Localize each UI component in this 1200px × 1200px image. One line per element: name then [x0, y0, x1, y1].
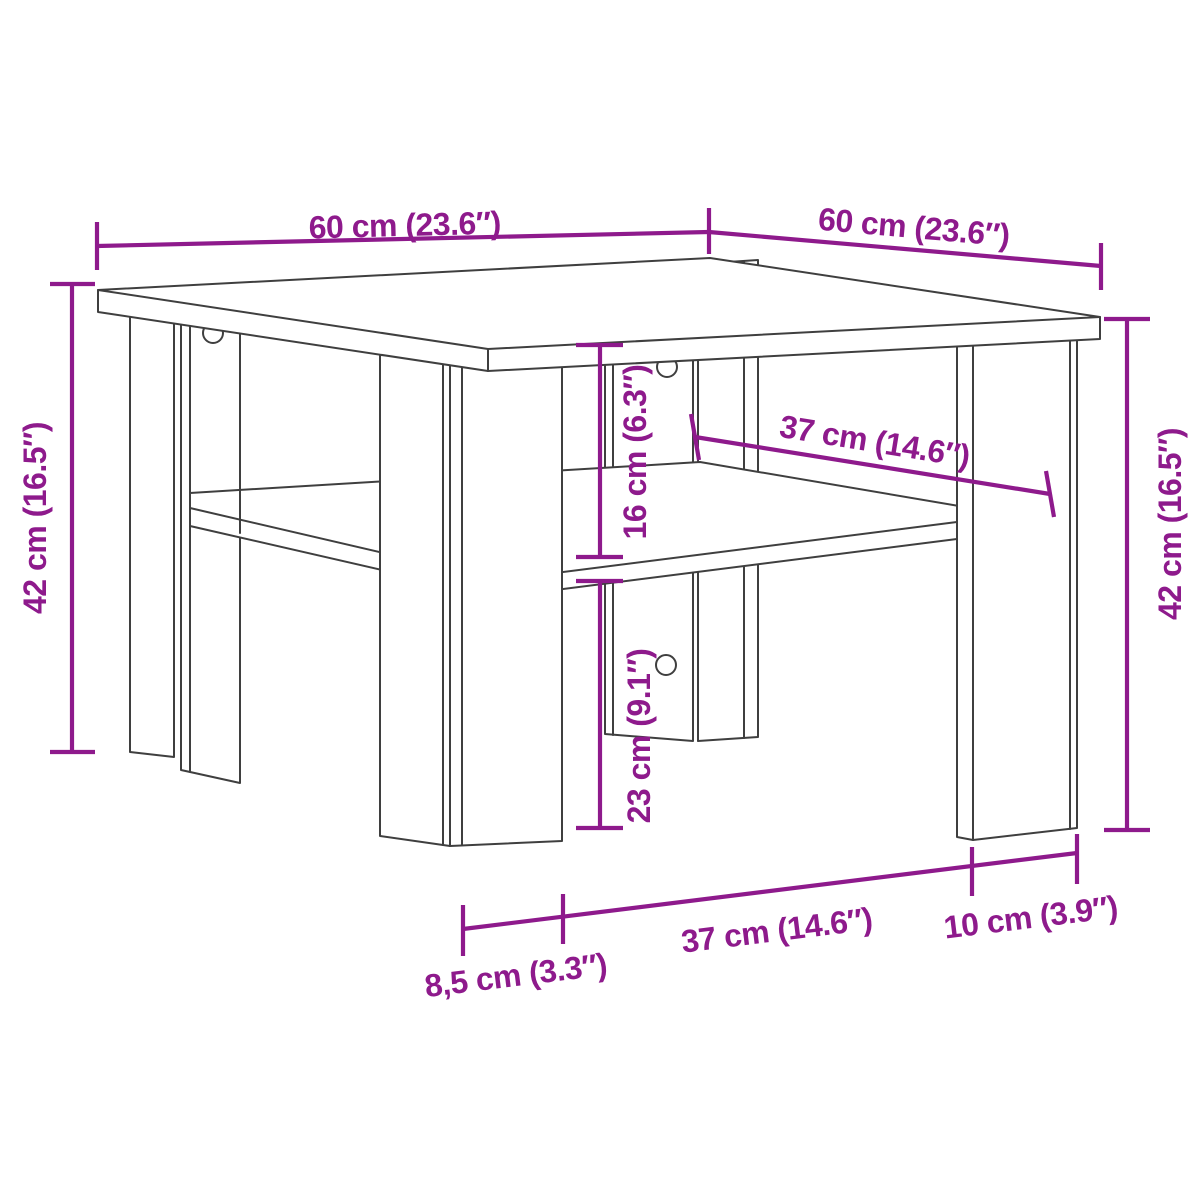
- leg-right-front-face: [973, 321, 1077, 840]
- leg-left-side-face: [130, 297, 174, 757]
- table-leg-front: [380, 352, 562, 846]
- leg-front-front-face: [450, 352, 562, 846]
- dimension-label-top-width: 60 cm (23.6″): [308, 204, 501, 245]
- drill-hole-icon: [656, 655, 676, 675]
- dimension-label-front-leg-width: 8,5 cm (3.3″): [423, 946, 609, 1004]
- table-leg-right: [957, 321, 1077, 840]
- dimension-height-left: 42 cm (16.5″): [17, 284, 95, 752]
- dimension-label-right-leg-width: 10 cm (3.9″): [942, 889, 1120, 946]
- dimension-label-height-right: 42 cm (16.5″): [1152, 428, 1188, 620]
- dimension-bottom-chain: 8,5 cm (3.3″) 37 cm (14.6″) 10 cm (3.9″): [423, 834, 1120, 1004]
- dimension-top-width: 60 cm (23.6″): [97, 204, 709, 270]
- coffee-table-diagram-canvas: 60 cm (23.6″) 60 cm (23.6″) 42 cm (16.5″…: [0, 0, 1200, 1200]
- dimension-height-right: 42 cm (16.5″): [1104, 319, 1188, 830]
- table-leg-left: [130, 297, 240, 783]
- product-dimension-diagram: 60 cm (23.6″) 60 cm (23.6″) 42 cm (16.5″…: [0, 0, 1200, 1200]
- leg-right-side-face: [957, 329, 973, 840]
- dimension-label-bottom-span: 37 cm (14.6″): [679, 901, 874, 960]
- leg-front-side-face: [380, 355, 450, 846]
- dimension-label-height-left: 42 cm (16.5″): [17, 422, 53, 614]
- dimension-label-below-shelf: 23 cm (9.1″): [621, 649, 657, 824]
- dimension-label-top-to-shelf: 16 cm (6.3″): [617, 365, 653, 540]
